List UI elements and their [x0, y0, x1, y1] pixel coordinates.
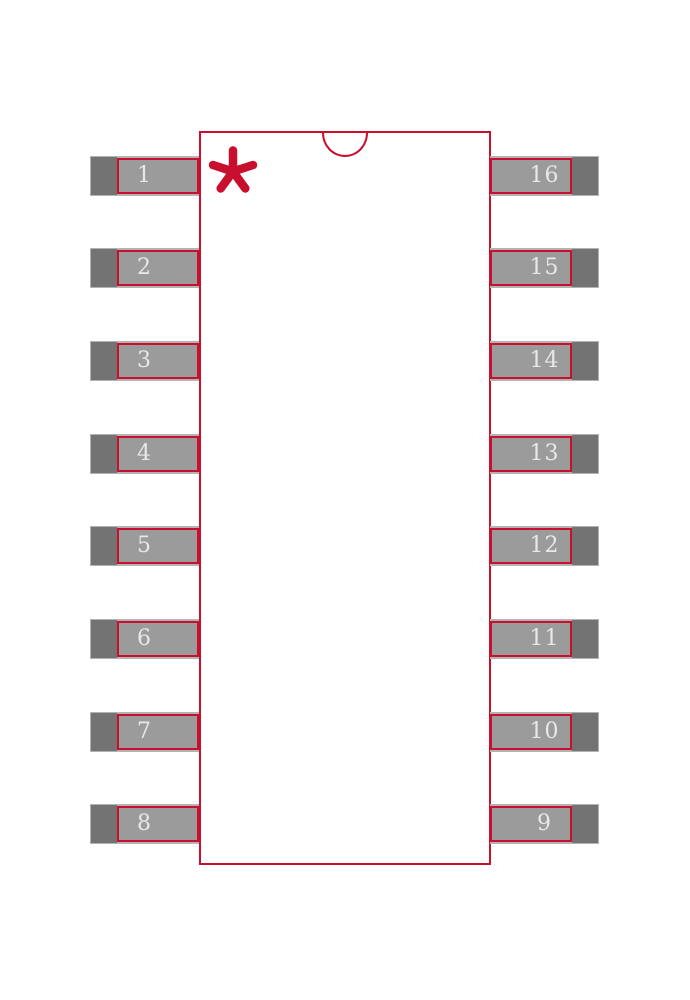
pin-number: 15: [490, 248, 599, 288]
pin-number: 8: [90, 804, 199, 844]
half-circle-notch-icon: [322, 133, 368, 157]
pad-right-14: 14: [490, 341, 599, 381]
pad-left-3: 3: [90, 341, 199, 381]
pin-number: 14: [490, 341, 599, 381]
pad-right-11: 11: [490, 619, 599, 659]
pin-number: 6: [90, 619, 199, 659]
pin-number: 3: [90, 341, 199, 381]
pad-left-6: 6: [90, 619, 199, 659]
pad-right-10: 10: [490, 712, 599, 752]
pad-left-2: 2: [90, 248, 199, 288]
pad-left-8: 8: [90, 804, 199, 844]
pin-number: 1: [90, 156, 199, 196]
footprint-canvas: 12345678 161514131211109: [0, 0, 690, 1000]
pin-number: 11: [490, 619, 599, 659]
pin-number: 7: [90, 712, 199, 752]
pad-left-7: 7: [90, 712, 199, 752]
pin-number: 13: [490, 434, 599, 474]
pad-right-9: 9: [490, 804, 599, 844]
pin-number: 2: [90, 248, 199, 288]
pad-left-1: 1: [90, 156, 199, 196]
pin-number: 12: [490, 526, 599, 566]
pin-number: 16: [490, 156, 599, 196]
pad-right-15: 15: [490, 248, 599, 288]
pin-number: 5: [90, 526, 199, 566]
pad-right-12: 12: [490, 526, 599, 566]
pad-left-5: 5: [90, 526, 199, 566]
component-body-outline: [199, 131, 491, 865]
pin-number: 10: [490, 712, 599, 752]
pad-right-13: 13: [490, 434, 599, 474]
asterisk-icon: [208, 145, 258, 198]
pad-left-4: 4: [90, 434, 199, 474]
pin-number: 9: [490, 804, 599, 844]
pin-number: 4: [90, 434, 199, 474]
pad-right-16: 16: [490, 156, 599, 196]
